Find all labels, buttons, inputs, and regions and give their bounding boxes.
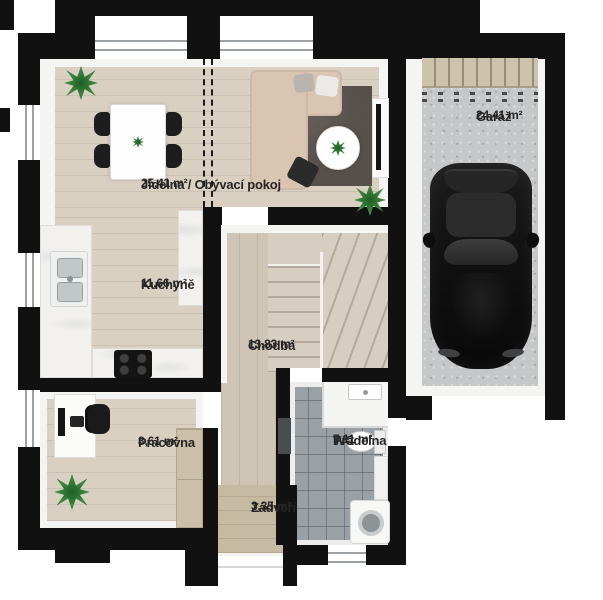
garage-door-track-1 — [422, 92, 538, 95]
entry-threshold-line — [218, 566, 283, 568]
cooktop-icon — [114, 350, 152, 378]
stairs-winder-flight — [322, 233, 388, 372]
sink-basin-1 — [57, 258, 83, 278]
car-windshield — [444, 239, 518, 265]
wall-kitchen-hall — [203, 207, 221, 392]
window-left-dining — [18, 105, 40, 160]
living-left-wall-face — [40, 58, 55, 225]
washbasin-faucet — [363, 390, 368, 395]
window-top-2 — [220, 33, 313, 59]
dining-chair-3 — [166, 112, 182, 136]
sofa-pillow-gray — [293, 73, 315, 93]
desk-keyboard — [70, 416, 84, 427]
stairs-start-edge — [268, 264, 322, 266]
sink-faucet — [67, 276, 73, 282]
wall-garage-bottom — [406, 396, 432, 420]
room-area: 25,41 m² — [141, 176, 187, 192]
sink-basin-2 — [57, 282, 83, 302]
office-chair — [88, 404, 110, 434]
kitchen-sink-icon — [50, 251, 88, 307]
wall-entry-bottom-left — [185, 550, 200, 586]
sofa-pillow-white — [315, 75, 340, 98]
room-area: 13,83 m² — [248, 337, 294, 353]
stairs-lower-flight — [268, 266, 322, 372]
room-area: 11,66 m² — [141, 276, 187, 292]
wall-top-band-seg1 — [55, 16, 95, 33]
wall-top-outer-band — [55, 0, 480, 16]
car-roof — [446, 193, 516, 237]
floor-plan: Jídelna / Obývací pokoj 25,41 m² Kuchyně… — [0, 0, 603, 600]
laundry-ledge — [374, 456, 388, 500]
car-rear-window — [444, 169, 518, 193]
room-area: 8,61 m² — [138, 434, 178, 450]
living-top-wall-face — [55, 58, 388, 67]
room-area: 3,35 m² — [251, 499, 291, 515]
wall-study-bottom — [18, 528, 212, 550]
monitor-icon — [58, 408, 65, 436]
wall-top-band-seg2 — [187, 16, 220, 33]
stairs-divider — [320, 252, 323, 372]
wall-top-band-seg3 — [313, 16, 480, 33]
window-wc-bottom — [328, 545, 366, 565]
dining-chair-1 — [94, 112, 110, 136]
hallway-left-wall-face — [221, 233, 227, 383]
door-living-hallway — [222, 207, 268, 225]
wall-kitchen-study — [18, 378, 221, 392]
wall-right-house — [388, 33, 406, 565]
tv-icon — [376, 104, 381, 170]
door-entry-main — [218, 556, 283, 586]
window-top-1 — [95, 33, 187, 59]
washer-drum — [358, 510, 384, 536]
dining-chair-4 — [166, 144, 182, 168]
car-hood-shine — [450, 273, 512, 343]
room-area: 7,11 m² — [333, 432, 372, 448]
entry-floor — [218, 485, 283, 558]
hallway-top-wall-face — [221, 225, 388, 233]
door-hallway-wc — [290, 368, 322, 382]
wall-deco-left — [0, 108, 10, 132]
washing-machine-icon — [350, 500, 390, 544]
window-left-study — [18, 390, 40, 447]
room-area: 24,41 m² — [476, 108, 522, 124]
garage-door-track-2 — [422, 99, 538, 102]
door-side-right — [388, 418, 406, 446]
wall-stub-bottom-left — [55, 550, 110, 563]
dining-chair-2 — [94, 144, 110, 168]
washbasin-icon — [348, 384, 382, 400]
window-left-kitchen — [18, 253, 40, 307]
car-icon — [430, 163, 532, 369]
garage-door — [422, 58, 538, 88]
wall-deco-corner — [0, 0, 14, 30]
door-garage-opening — [432, 396, 545, 420]
door-hallway-study — [203, 392, 221, 428]
hall-radiator — [278, 418, 291, 454]
wall-garage-right — [545, 33, 565, 420]
